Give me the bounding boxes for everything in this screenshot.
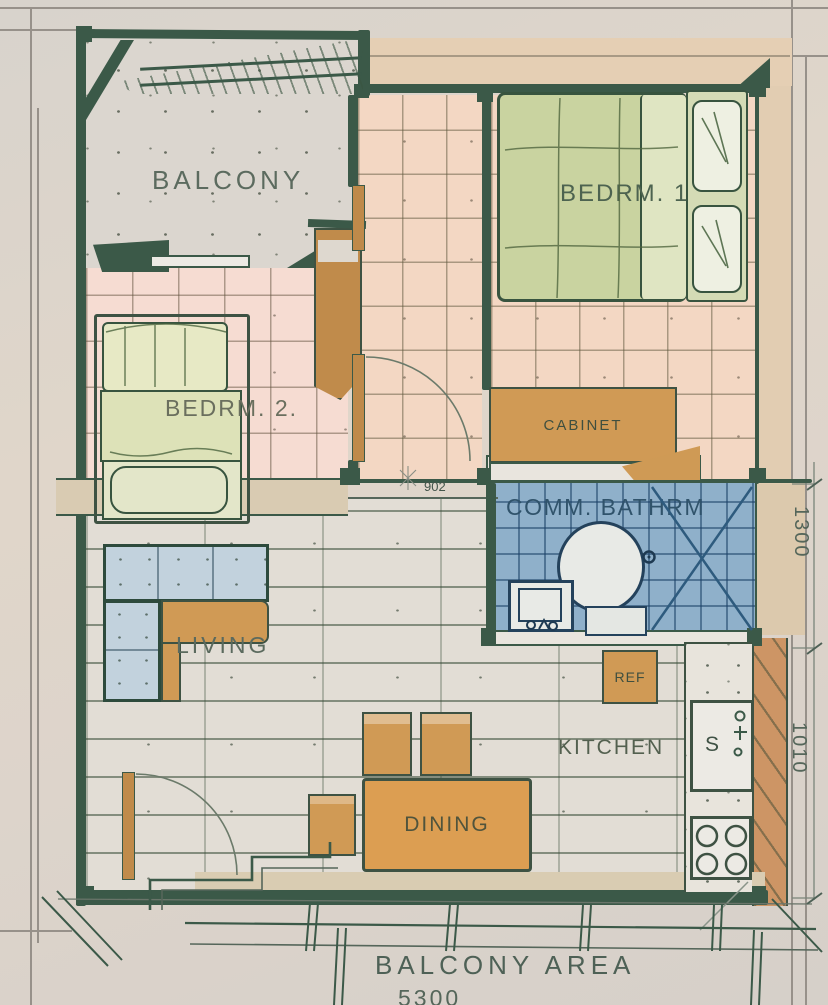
kitchen-sink: S	[690, 700, 754, 792]
bathroom-sink-basin	[518, 588, 562, 622]
dining-table: DINING	[362, 778, 532, 872]
stove	[690, 816, 752, 880]
corridor-left-wall-a	[348, 95, 358, 187]
bedroom1-label: BEDRM. 1	[560, 180, 689, 208]
dining-chair	[308, 794, 356, 856]
top-wall-innerline	[362, 55, 790, 57]
wall-junction	[76, 886, 94, 905]
dim-kitchen-depth: 1010	[787, 722, 810, 817]
dining-chair	[420, 712, 472, 776]
wall-junction	[749, 468, 766, 483]
wall-junction	[481, 628, 496, 646]
dim-corridor-width: 902	[424, 479, 446, 494]
kitchen-right-wall	[752, 638, 788, 906]
toilet-tank	[585, 606, 647, 636]
frame-line-left	[30, 8, 32, 1005]
balcony-threshold	[150, 255, 250, 268]
dim-bathroom-depth: 1300	[789, 506, 812, 601]
sofa-back-left	[103, 600, 161, 702]
door-leaf	[352, 185, 365, 251]
door-leaf	[122, 772, 135, 880]
top-wall-band	[362, 38, 792, 86]
bed1-pillow	[692, 205, 742, 293]
bed2-blanket-roll	[110, 466, 228, 514]
balcony-area-label: BALCONY AREA	[375, 950, 635, 981]
frame-line-left2	[37, 108, 39, 943]
wall-junction	[76, 26, 92, 42]
bathroom-label: COMM. BATHRM	[506, 494, 705, 521]
cabinet: CABINET	[489, 387, 677, 463]
left-outer-wall	[76, 30, 86, 906]
bottom-outer-wall	[76, 890, 768, 905]
living-label: LIVING	[176, 632, 269, 659]
right-wall-fill	[759, 86, 791, 484]
balcony-label: BALCONY	[152, 165, 304, 196]
door-leaf	[352, 354, 365, 462]
kitchen-label: KITCHEN	[558, 736, 664, 760]
dining-label: DINING	[404, 813, 490, 837]
corridor-dim-line	[348, 497, 498, 499]
refrigerator: REF	[602, 650, 658, 704]
dining-chair	[362, 712, 412, 776]
bottom-wall-band	[195, 872, 765, 892]
wall-junction	[340, 468, 360, 485]
bathroom-left-wall	[486, 483, 496, 645]
wall-junction	[477, 89, 493, 102]
bed1-pillow	[692, 100, 742, 192]
bedroom2-label: BEDRM. 2.	[165, 395, 298, 422]
refrigerator-label: REF	[615, 669, 646, 685]
floor-plan-sheet: CABINET DINING REF S BALCONY BEDRM. 1 BE…	[0, 0, 828, 1005]
cabinet-label: CABINET	[543, 417, 622, 434]
bed2-pillow	[102, 322, 228, 392]
corridor-floor	[358, 95, 482, 483]
bedroom1-left-wall	[482, 95, 491, 390]
frame-line-bottomleft	[0, 930, 72, 932]
kitchen-sink-label: S	[705, 733, 719, 757]
frame-line-top	[0, 7, 828, 9]
sofa-back-top	[103, 544, 269, 602]
dim-overall-width: 5300	[398, 985, 461, 1005]
